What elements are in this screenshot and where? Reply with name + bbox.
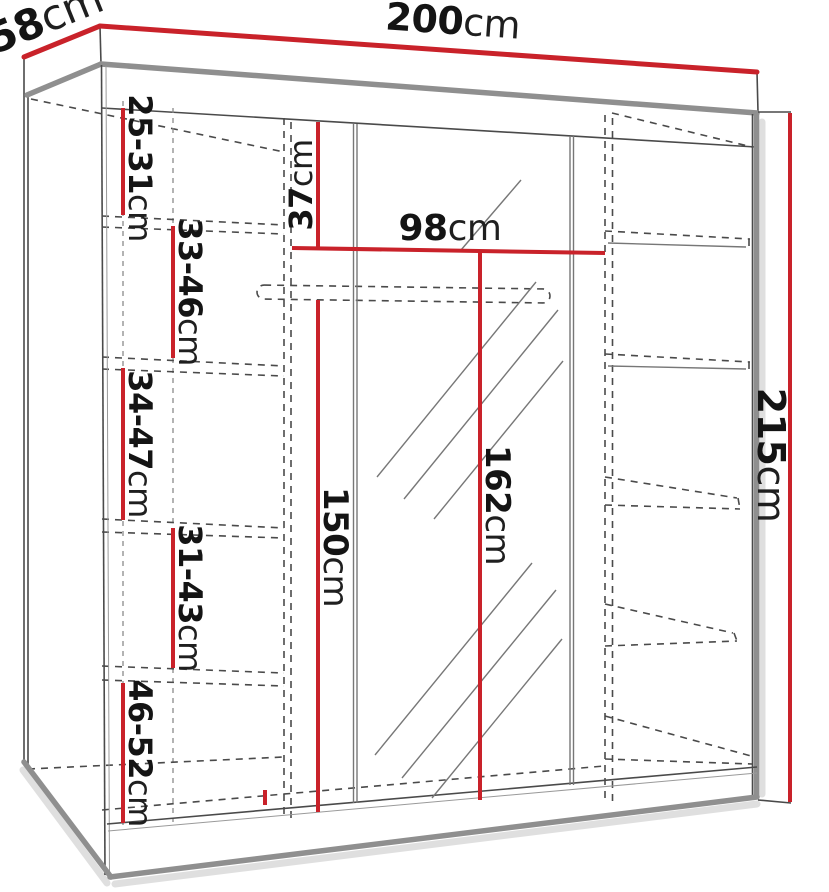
shelf-gap-4-label: 31-43cm [171, 524, 209, 672]
shelf-gap-5-label: 46-52cm [121, 679, 159, 827]
shelf-gap-1-label: 25-31cm [121, 94, 159, 242]
height-label: 215cm [749, 388, 793, 523]
width-label: 200cm [384, 0, 521, 48]
left-height-label: 150cm [315, 487, 355, 607]
dimension-labels: 58cm 200cm 215cm 25-31cm 33-46cm 34-47cm… [0, 0, 793, 827]
mirror-hatch-lines [375, 180, 563, 798]
shelf-gap-2-label: 33-46cm [171, 218, 209, 366]
shelf-gap-3-label: 34-47cm [121, 370, 159, 518]
depth-label: 58cm [0, 0, 110, 64]
wardrobe-drawing: 58cm 200cm 215cm 25-31cm 33-46cm 34-47cm… [0, 0, 829, 892]
top-gap-label: 37cm [282, 139, 320, 230]
rod-height-label: 162cm [477, 445, 517, 565]
wardrobe-dimension-diagram: 58cm 200cm 215cm 25-31cm 33-46cm 34-47cm… [0, 0, 829, 892]
hanging-rod [257, 285, 550, 303]
rod-width-label: 98cm [399, 208, 502, 249]
